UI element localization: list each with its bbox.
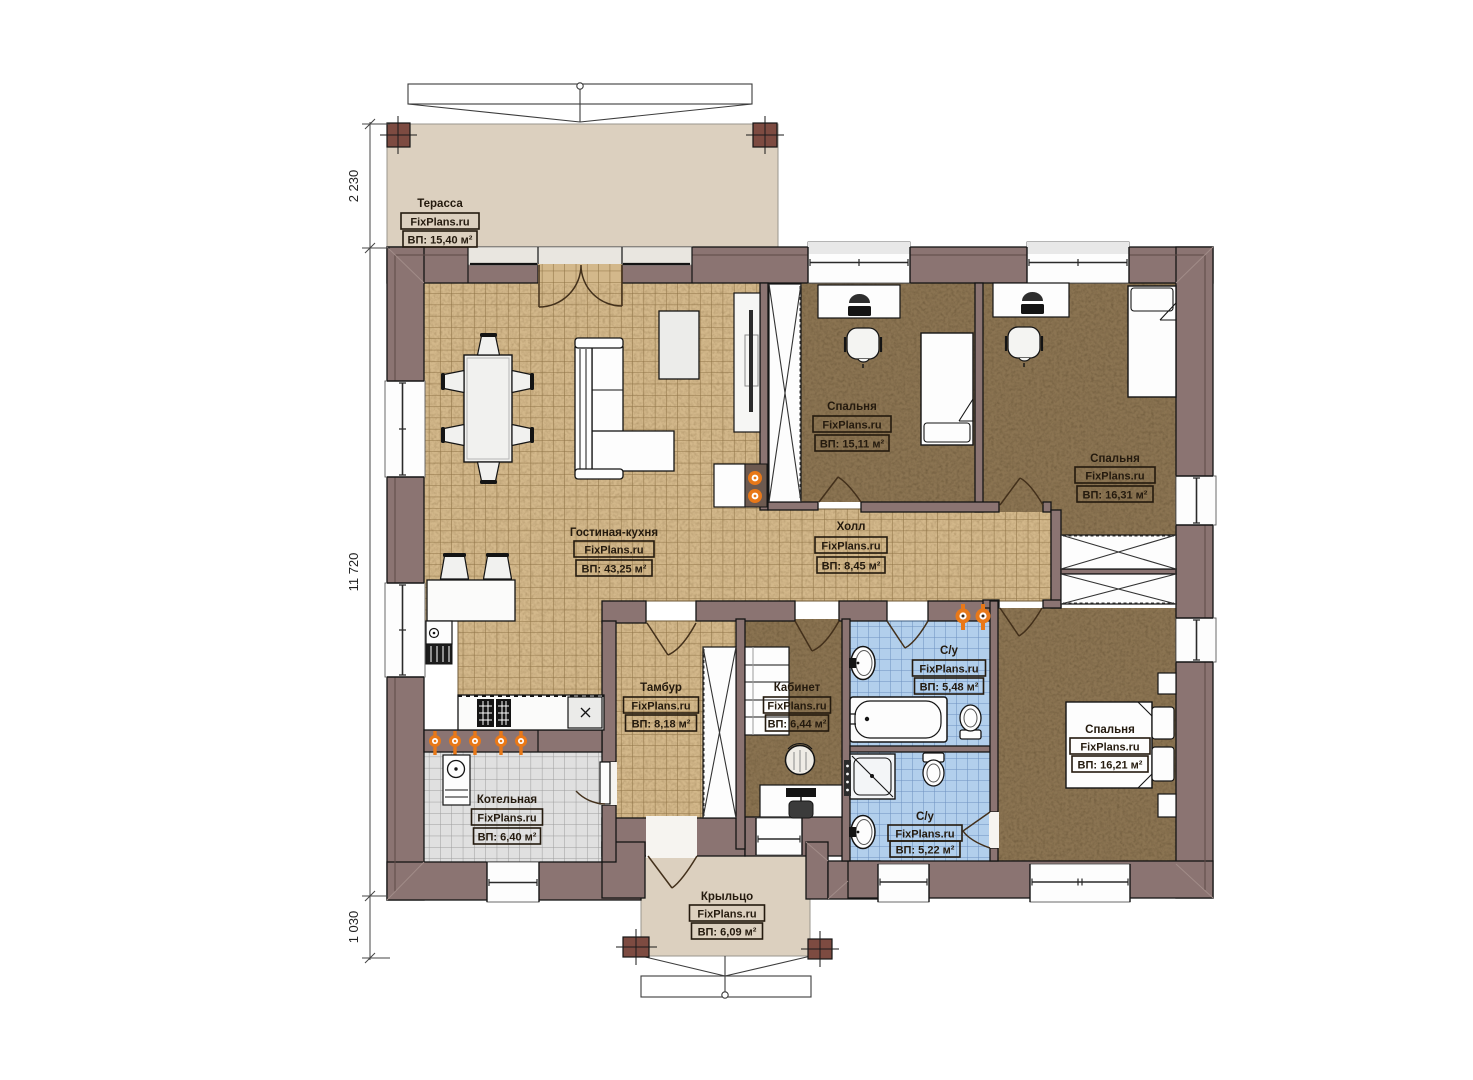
svg-text:Крыльцо: Крыльцо [701, 891, 753, 903]
svg-text:Спальня: Спальня [827, 401, 877, 413]
svg-text:1 030: 1 030 [346, 911, 361, 944]
svg-text:FixPlans.ru: FixPlans.ru [895, 829, 954, 841]
svg-text:ВП: 6,40 м²: ВП: 6,40 м² [478, 832, 537, 844]
svg-text:С/у: С/у [940, 645, 959, 657]
svg-text:FixPlans.ru: FixPlans.ru [631, 701, 690, 713]
svg-text:ВП: 16,31 м²: ВП: 16,31 м² [1083, 490, 1148, 502]
svg-text:FixPlans.ru: FixPlans.ru [1080, 742, 1139, 754]
svg-text:Тамбур: Тамбур [640, 682, 682, 694]
svg-text:ВП: 15,40 м²: ВП: 15,40 м² [408, 235, 473, 247]
svg-text:Холл: Холл [837, 521, 866, 533]
svg-text:Кабинет: Кабинет [774, 682, 821, 694]
svg-text:FixPlans.ru: FixPlans.ru [410, 217, 469, 229]
svg-text:11 720: 11 720 [346, 553, 361, 592]
svg-text:ВП: 6,44 м²: ВП: 6,44 м² [768, 719, 827, 731]
svg-text:Гостиная-кухня: Гостиная-кухня [570, 527, 658, 539]
svg-text:ВП: 8,45 м²: ВП: 8,45 м² [822, 561, 881, 573]
svg-text:FixPlans.ru: FixPlans.ru [477, 813, 536, 825]
svg-text:С/у: С/у [916, 811, 935, 823]
svg-text:Спальня: Спальня [1090, 453, 1140, 465]
svg-text:FixPlans.ru: FixPlans.ru [697, 909, 756, 921]
svg-text:FixPlans.ru: FixPlans.ru [767, 701, 826, 713]
svg-text:ВП: 16,21 м²: ВП: 16,21 м² [1078, 760, 1143, 772]
svg-text:2 230: 2 230 [346, 170, 361, 203]
svg-text:ВП: 5,22 м²: ВП: 5,22 м² [896, 845, 955, 857]
svg-text:FixPlans.ru: FixPlans.ru [584, 545, 643, 557]
svg-text:Спальня: Спальня [1085, 724, 1135, 736]
svg-text:ВП: 6,09 м²: ВП: 6,09 м² [698, 927, 757, 939]
svg-text:FixPlans.ru: FixPlans.ru [822, 420, 881, 432]
svg-text:Терасса: Терасса [417, 198, 463, 210]
svg-text:Котельная: Котельная [477, 794, 537, 806]
svg-text:ВП: 43,25 м²: ВП: 43,25 м² [582, 564, 647, 576]
svg-text:ВП: 5,48 м²: ВП: 5,48 м² [920, 682, 979, 694]
svg-text:ВП: 15,11 м²: ВП: 15,11 м² [820, 439, 885, 451]
svg-text:ВП: 8,18 м²: ВП: 8,18 м² [632, 719, 691, 731]
svg-text:FixPlans.ru: FixPlans.ru [1085, 471, 1144, 483]
svg-text:FixPlans.ru: FixPlans.ru [919, 664, 978, 676]
svg-text:FixPlans.ru: FixPlans.ru [821, 541, 880, 553]
